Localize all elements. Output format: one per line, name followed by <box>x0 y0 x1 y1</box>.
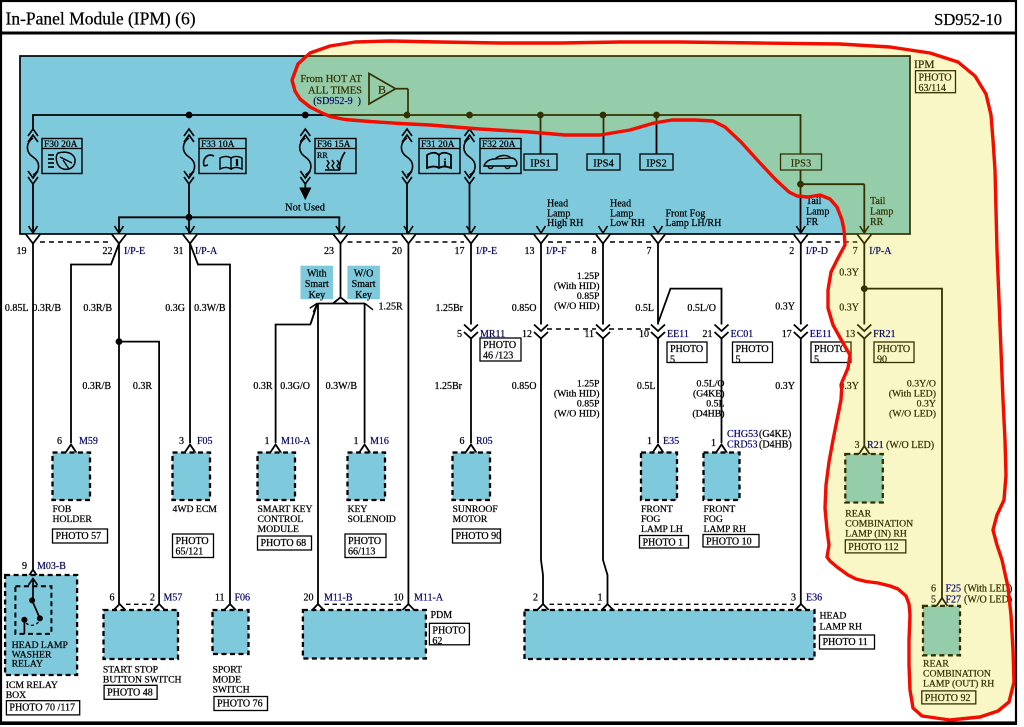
svg-text:R21: R21 <box>867 440 884 451</box>
svg-text:62: 62 <box>432 636 442 647</box>
svg-text:8: 8 <box>592 246 597 257</box>
svg-text:Not Used: Not Used <box>285 203 326 214</box>
svg-text:LAMP RH: LAMP RH <box>704 524 746 535</box>
svg-text:I/P-E: I/P-E <box>476 246 497 257</box>
svg-text:PHOTO: PHOTO <box>670 344 703 355</box>
svg-text:6: 6 <box>110 593 115 604</box>
svg-text:11: 11 <box>584 329 594 340</box>
svg-text:M11-A: M11-A <box>414 593 444 604</box>
svg-text:CHG53: CHG53 <box>727 429 758 440</box>
svg-text:31: 31 <box>174 246 184 257</box>
svg-text:PHOTO 11: PHOTO 11 <box>823 637 868 648</box>
svg-text:F36 15A: F36 15A <box>317 140 351 150</box>
svg-text:21: 21 <box>703 329 713 340</box>
svg-text:HEAD: HEAD <box>820 611 847 622</box>
svg-text:65/121: 65/121 <box>176 547 204 558</box>
svg-text:HOLDER: HOLDER <box>53 514 93 525</box>
svg-text:M10-A: M10-A <box>281 436 311 447</box>
svg-text:1.25R: 1.25R <box>379 302 404 313</box>
svg-text:0.3W/B: 0.3W/B <box>326 381 358 392</box>
svg-text:High RH: High RH <box>547 218 583 229</box>
svg-text:CRD53: CRD53 <box>727 440 758 451</box>
svg-text:IPS1: IPS1 <box>530 159 550 170</box>
svg-text:0.3Y: 0.3Y <box>775 381 795 392</box>
svg-text:0.85O: 0.85O <box>512 381 537 392</box>
svg-text:PHOTO: PHOTO <box>483 340 516 351</box>
svg-text:13: 13 <box>525 246 535 257</box>
svg-text:RELAY: RELAY <box>12 659 43 670</box>
svg-text:1: 1 <box>647 436 652 447</box>
svg-text:0.3R/B: 0.3R/B <box>83 303 112 314</box>
svg-text:I/P-A: I/P-A <box>869 246 892 257</box>
svg-text:(D4HB): (D4HB) <box>759 440 792 451</box>
svg-text:M11-B: M11-B <box>324 593 353 604</box>
svg-text:PHOTO: PHOTO <box>348 536 381 547</box>
svg-text:PHOTO: PHOTO <box>736 344 769 355</box>
svg-text:0.3G: 0.3G <box>165 303 185 314</box>
svg-text:F32 20A: F32 20A <box>482 140 516 150</box>
svg-text:0.3R/B: 0.3R/B <box>32 303 61 314</box>
svg-text:1.25Br: 1.25Br <box>436 303 464 314</box>
svg-text:FR: FR <box>806 217 819 228</box>
svg-text:(SD952-9 ): (SD952-9 ) <box>313 96 361 107</box>
svg-text:0.3Y: 0.3Y <box>775 302 795 313</box>
svg-text:1.25Br: 1.25Br <box>435 381 463 392</box>
svg-text:6: 6 <box>57 436 62 447</box>
svg-text:7: 7 <box>647 246 652 257</box>
svg-text:I/P-A: I/P-A <box>195 246 218 257</box>
svg-text:M57: M57 <box>164 593 183 604</box>
svg-text:Lamp: Lamp <box>806 207 829 218</box>
svg-text:F25: F25 <box>946 584 962 595</box>
svg-text:Key: Key <box>355 290 372 301</box>
svg-text:PHOTO: PHOTO <box>176 536 209 547</box>
svg-text:PHOTO 57: PHOTO 57 <box>56 531 102 542</box>
svg-text:EE11: EE11 <box>667 329 689 340</box>
svg-text:5: 5 <box>457 329 462 340</box>
svg-text:E35: E35 <box>663 436 679 447</box>
svg-text:PHOTO 76: PHOTO 76 <box>217 699 263 710</box>
svg-text:In-Panel Module (IPM) (6): In-Panel Module (IPM) (6) <box>6 9 196 29</box>
svg-text:IPS4: IPS4 <box>593 159 614 170</box>
svg-text:PHOTO: PHOTO <box>432 625 465 636</box>
svg-text:SOLENOID: SOLENOID <box>348 514 396 525</box>
svg-text:FR21: FR21 <box>873 329 895 340</box>
svg-text:12: 12 <box>522 329 532 340</box>
svg-text:PDM: PDM <box>431 610 453 621</box>
svg-text:SD952-10: SD952-10 <box>934 10 1002 29</box>
svg-text:2: 2 <box>789 246 794 257</box>
svg-text:W/O: W/O <box>354 269 373 280</box>
svg-text:1: 1 <box>354 436 359 447</box>
svg-text:(G4KE): (G4KE) <box>759 429 791 440</box>
svg-text:0.3G/O: 0.3G/O <box>280 381 310 392</box>
svg-text:PHOTO 10: PHOTO 10 <box>706 537 752 548</box>
svg-text:M59: M59 <box>79 436 98 447</box>
svg-text:11: 11 <box>215 593 225 604</box>
svg-text:10: 10 <box>639 329 649 340</box>
svg-text:PHOTO 90: PHOTO 90 <box>456 531 502 542</box>
svg-text:BOX: BOX <box>6 690 26 701</box>
svg-text:5: 5 <box>736 355 741 366</box>
svg-text:6: 6 <box>460 436 465 447</box>
svg-text:9: 9 <box>22 561 27 572</box>
svg-text:66/113: 66/113 <box>348 547 375 558</box>
svg-text:22: 22 <box>103 246 113 257</box>
svg-text:3: 3 <box>791 593 796 604</box>
svg-text:5: 5 <box>670 355 675 366</box>
svg-text:F30 20A: F30 20A <box>44 140 78 150</box>
svg-text:0.5L/O: 0.5L/O <box>687 303 716 314</box>
svg-text:MODULE: MODULE <box>258 524 300 535</box>
svg-text:MOTOR: MOTOR <box>453 514 488 525</box>
svg-text:F06: F06 <box>235 593 251 604</box>
svg-text:17: 17 <box>455 246 465 257</box>
svg-text:10: 10 <box>394 593 404 604</box>
svg-text:Lamp LH/RH: Lamp LH/RH <box>666 218 722 229</box>
svg-text:0.85O: 0.85O <box>512 303 537 314</box>
svg-text:M03-B: M03-B <box>37 561 66 572</box>
svg-text:3: 3 <box>179 436 184 447</box>
svg-text:E36: E36 <box>806 593 822 604</box>
svg-text:F27: F27 <box>946 595 962 606</box>
svg-text:BUTTON SWITCH: BUTTON SWITCH <box>103 674 182 685</box>
svg-text:M16: M16 <box>370 436 389 447</box>
svg-text:2: 2 <box>533 593 538 604</box>
svg-text:17: 17 <box>782 329 792 340</box>
svg-text:Smart: Smart <box>352 279 376 290</box>
svg-text:1: 1 <box>265 436 270 447</box>
svg-text:LAMP RH: LAMP RH <box>820 622 862 633</box>
svg-text:F33 10A: F33 10A <box>201 140 235 150</box>
svg-text:46 /123: 46 /123 <box>483 351 513 362</box>
svg-text:I/P-F: I/P-F <box>546 246 567 257</box>
svg-text:0.5L: 0.5L <box>637 381 656 392</box>
svg-text:(D4HB): (D4HB) <box>692 409 724 420</box>
svg-text:0.3R: 0.3R <box>253 381 273 392</box>
svg-text:With: With <box>307 269 327 280</box>
svg-text:EE11: EE11 <box>810 329 832 340</box>
svg-text:0.3R: 0.3R <box>133 381 153 392</box>
svg-text:F31 20A: F31 20A <box>421 140 455 150</box>
svg-text:Key: Key <box>308 290 325 301</box>
svg-text:PHOTO 48: PHOTO 48 <box>107 687 153 698</box>
svg-text:0.5L: 0.5L <box>635 303 654 314</box>
svg-text:IPS2: IPS2 <box>646 159 666 170</box>
svg-text:I/P-D: I/P-D <box>806 246 828 257</box>
svg-text:2: 2 <box>150 593 155 604</box>
svg-text:EC01: EC01 <box>731 329 754 340</box>
svg-text:LAMP LH: LAMP LH <box>641 524 683 535</box>
svg-text:20: 20 <box>304 593 314 604</box>
svg-text:1: 1 <box>598 593 603 604</box>
svg-text:0.3W/B: 0.3W/B <box>194 303 226 314</box>
svg-text:Smart: Smart <box>305 279 329 290</box>
svg-text:(W/O HID): (W/O HID) <box>554 409 599 420</box>
svg-text:19: 19 <box>17 246 27 257</box>
svg-text:RR: RR <box>317 151 328 160</box>
svg-text:PHOTO 1: PHOTO 1 <box>643 538 684 549</box>
svg-text:R05: R05 <box>476 436 493 447</box>
svg-text:PHOTO: PHOTO <box>814 344 847 355</box>
svg-text:1: 1 <box>711 438 716 449</box>
svg-text:20: 20 <box>392 246 402 257</box>
svg-text:i: i <box>444 158 447 169</box>
svg-text:SWITCH: SWITCH <box>213 684 250 695</box>
svg-text:Low RH: Low RH <box>610 218 645 229</box>
svg-text:(W/O HID): (W/O HID) <box>554 301 599 312</box>
svg-text:4WD ECM: 4WD ECM <box>173 504 218 515</box>
svg-text:5: 5 <box>814 355 819 366</box>
svg-text:0.3R/B: 0.3R/B <box>82 381 111 392</box>
svg-text:I/P-E: I/P-E <box>124 246 145 257</box>
svg-text:PHOTO 68: PHOTO 68 <box>261 538 307 549</box>
svg-text:0.85L: 0.85L <box>5 303 29 314</box>
svg-text:23: 23 <box>324 246 334 257</box>
svg-text:F05: F05 <box>197 436 213 447</box>
svg-text:PHOTO 70 /117: PHOTO 70 /117 <box>9 703 75 714</box>
